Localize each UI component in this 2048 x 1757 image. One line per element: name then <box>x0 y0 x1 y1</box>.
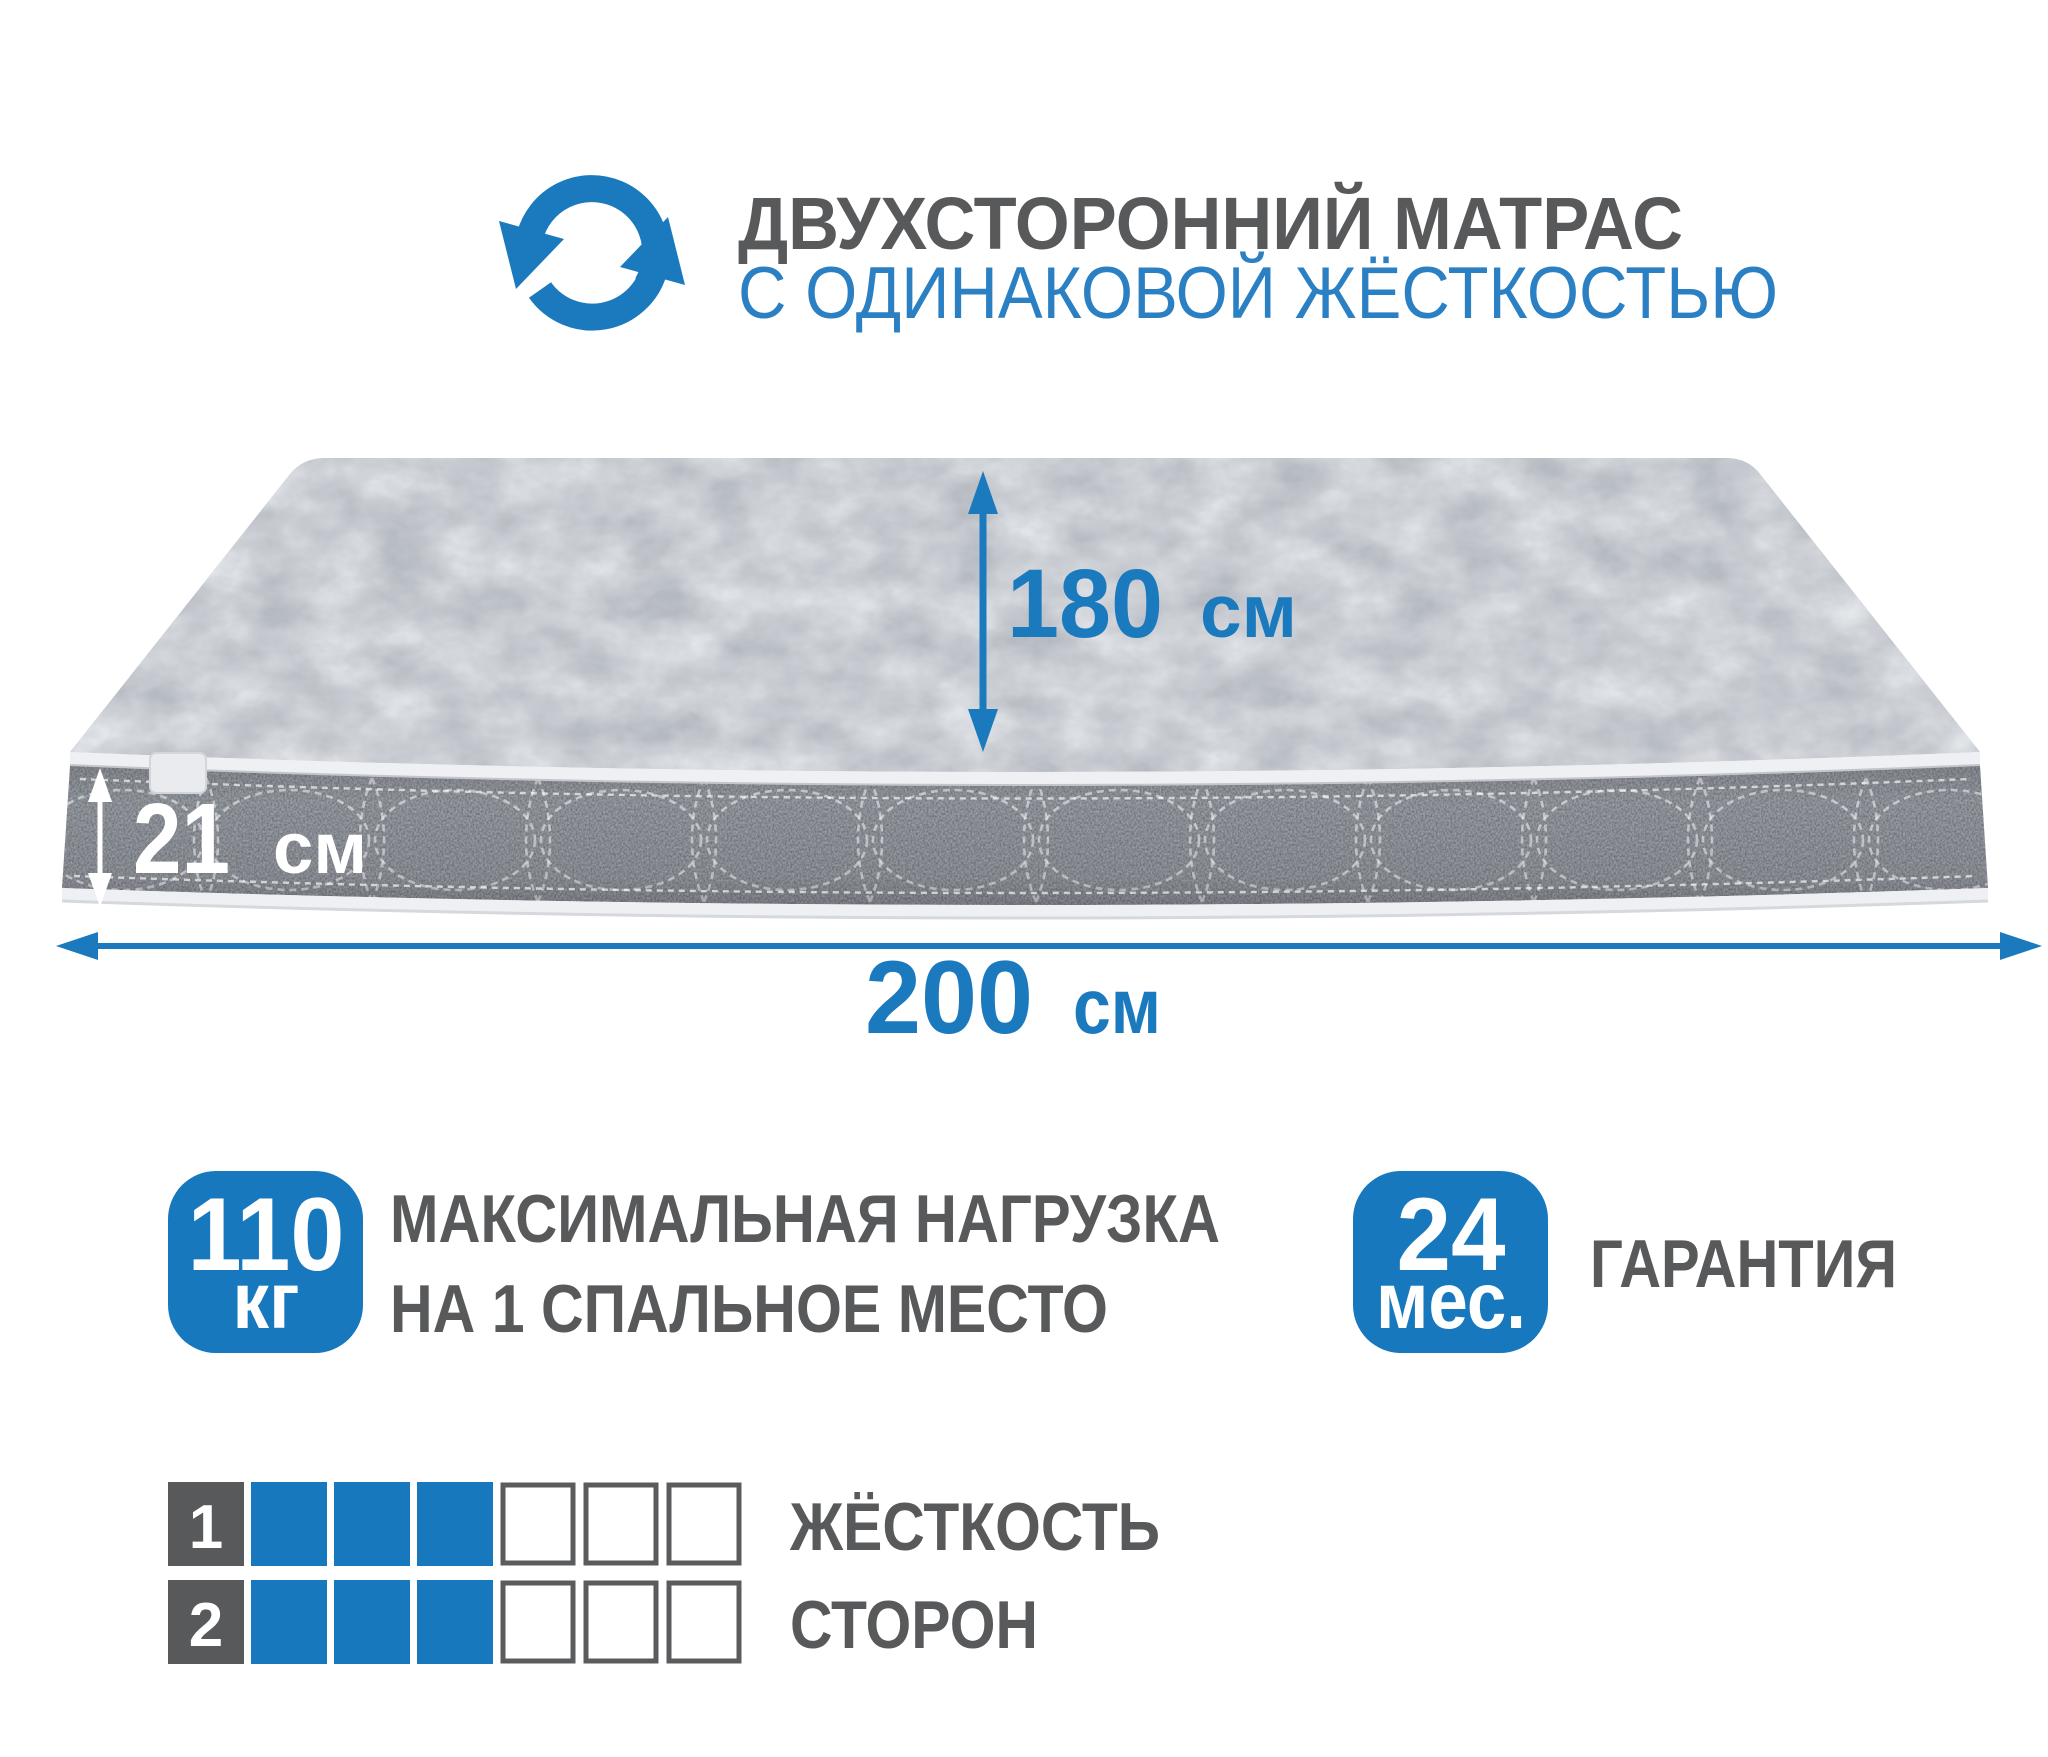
warranty-unit: мес. <box>1376 1256 1526 1345</box>
firmness-cell-filled <box>251 1482 327 1566</box>
length-unit: см <box>1073 962 1161 1050</box>
rotate-arrowhead-left <box>499 221 564 289</box>
firmness-label-line2: СТОРОН <box>790 1587 1038 1663</box>
firmness-cell-filled <box>334 1482 410 1566</box>
firmness-cell-empty <box>503 1485 573 1563</box>
page-subtitle: С ОДИНАКОВОЙ ЖЁСТКОСТЬЮ <box>738 252 1778 334</box>
length-value: 200 <box>865 940 1033 1056</box>
firmness-cell-empty <box>586 1583 656 1661</box>
firmness-cell-empty <box>669 1583 739 1661</box>
firmness-cell-empty <box>503 1583 573 1661</box>
mattress-infographic: ДВУХСТОРОННИЙ МАТРАС С ОДИНАКОВОЙ ЖЁСТКО… <box>0 0 2048 1757</box>
firmness-cell-empty <box>586 1485 656 1563</box>
rotate-arrows-icon <box>499 189 685 317</box>
firmness-cell-filled <box>334 1580 410 1664</box>
firmness-cell-filled <box>251 1580 327 1664</box>
firmness-side-number: 2 <box>189 1591 223 1660</box>
max-load-unit: кг <box>233 1256 300 1345</box>
firmness-side-number: 1 <box>189 1493 223 1562</box>
height-unit: см <box>273 809 367 889</box>
firmness-cell-filled <box>417 1482 493 1566</box>
max-load-label-line2: НА 1 СПАЛЬНОЕ МЕСТО <box>390 1271 1108 1347</box>
height-value: 21 <box>133 783 230 895</box>
width-unit: см <box>1200 569 1297 653</box>
firmness-label-line1: ЖЁСТКОСТЬ <box>789 1489 1160 1565</box>
firmness-cell-filled <box>417 1580 493 1664</box>
max-load-label-line1: МАКСИМАЛЬНАЯ НАГРУЗКА <box>390 1181 1220 1257</box>
rotate-arc-bottom <box>540 270 654 317</box>
firmness-cell-empty <box>669 1485 739 1563</box>
firmness-scale: 12 <box>168 1482 739 1664</box>
warranty-label: ГАРАНТИЯ <box>1590 1226 1897 1302</box>
length-dimension-arrow <box>56 932 2042 960</box>
width-value: 180 <box>1007 549 1163 658</box>
